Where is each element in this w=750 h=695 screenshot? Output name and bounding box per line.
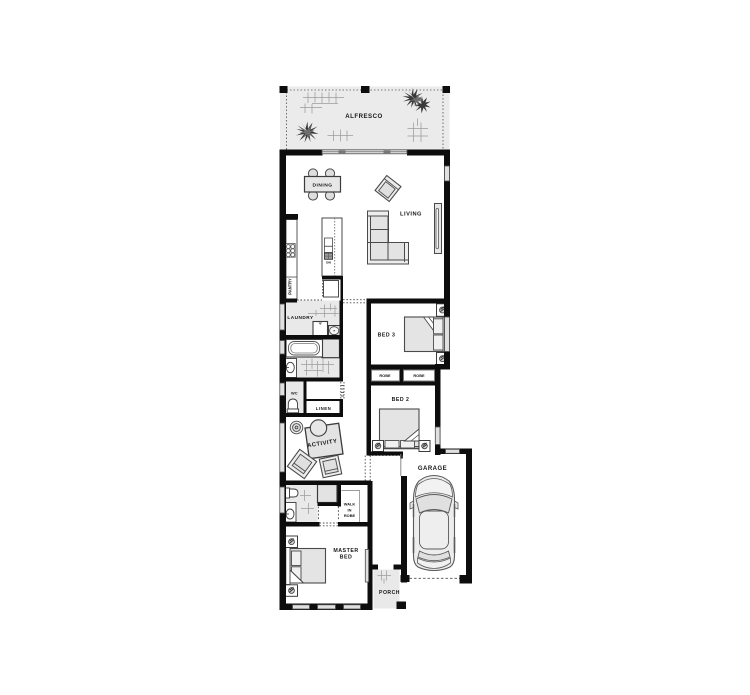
svg-text:ROBE: ROBE (413, 373, 425, 378)
svg-text:ALFRESCO: ALFRESCO (345, 113, 383, 120)
svg-text:LIVING: LIVING (400, 211, 422, 217)
svg-text:WALK: WALK (344, 502, 356, 507)
svg-text:GARAGE: GARAGE (418, 466, 447, 472)
svg-text:BED 2: BED 2 (392, 397, 410, 403)
svg-text:BED: BED (340, 555, 353, 561)
svg-text:DINING: DINING (312, 182, 332, 188)
svg-text:WC: WC (291, 391, 298, 396)
svg-text:PANTRY: PANTRY (287, 278, 292, 295)
svg-text:ROBE: ROBE (344, 513, 356, 518)
svg-text:PORCH: PORCH (379, 590, 400, 596)
svg-text:BED 3: BED 3 (378, 333, 396, 339)
svg-text:LAUNDRY: LAUNDRY (287, 315, 314, 320)
svg-text:MASTER: MASTER (333, 548, 358, 554)
svg-text:ROBE: ROBE (379, 373, 391, 378)
svg-text:DW: DW (326, 260, 331, 264)
svg-text:LINEN: LINEN (316, 406, 331, 411)
svg-text:IN: IN (348, 508, 352, 513)
